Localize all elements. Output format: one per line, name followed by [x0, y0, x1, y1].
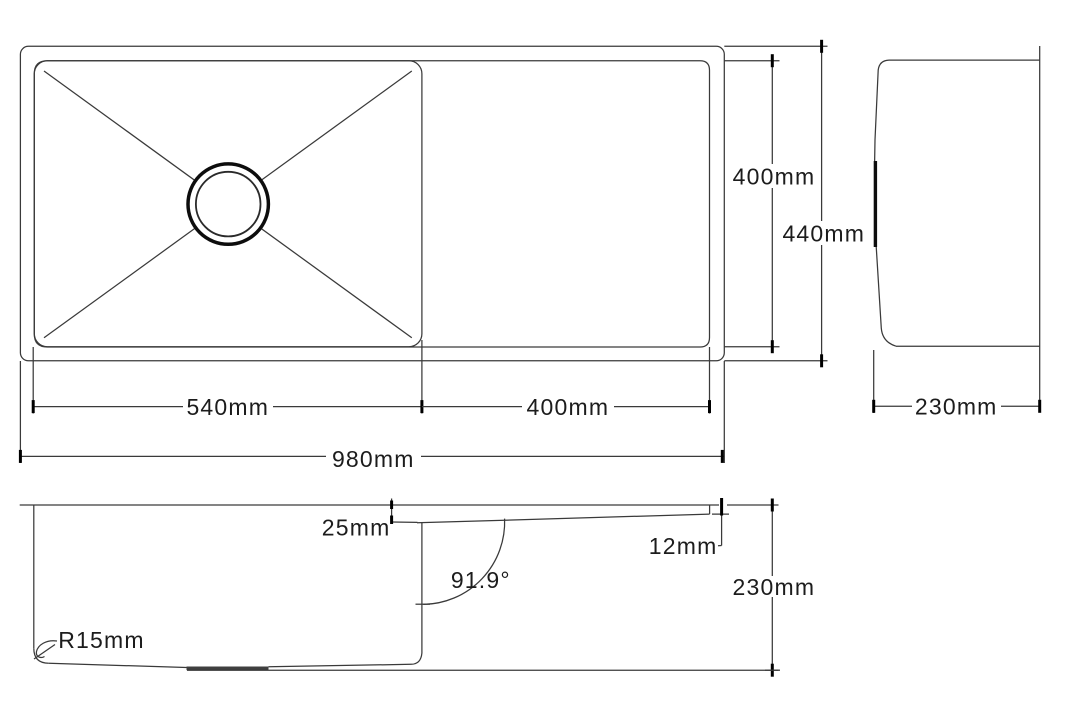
svg-text:12mm: 12mm [649, 533, 718, 559]
svg-text:400mm: 400mm [527, 394, 610, 420]
svg-text:540mm: 540mm [186, 394, 269, 420]
svg-text:980mm: 980mm [332, 446, 415, 472]
svg-text:440mm: 440mm [782, 221, 865, 247]
svg-text:91.9°: 91.9° [451, 567, 511, 593]
svg-text:400mm: 400mm [733, 164, 816, 190]
svg-text:R15mm: R15mm [58, 627, 145, 653]
svg-text:230mm: 230mm [733, 574, 816, 600]
svg-text:25mm: 25mm [322, 515, 391, 541]
svg-text:230mm: 230mm [915, 393, 998, 419]
